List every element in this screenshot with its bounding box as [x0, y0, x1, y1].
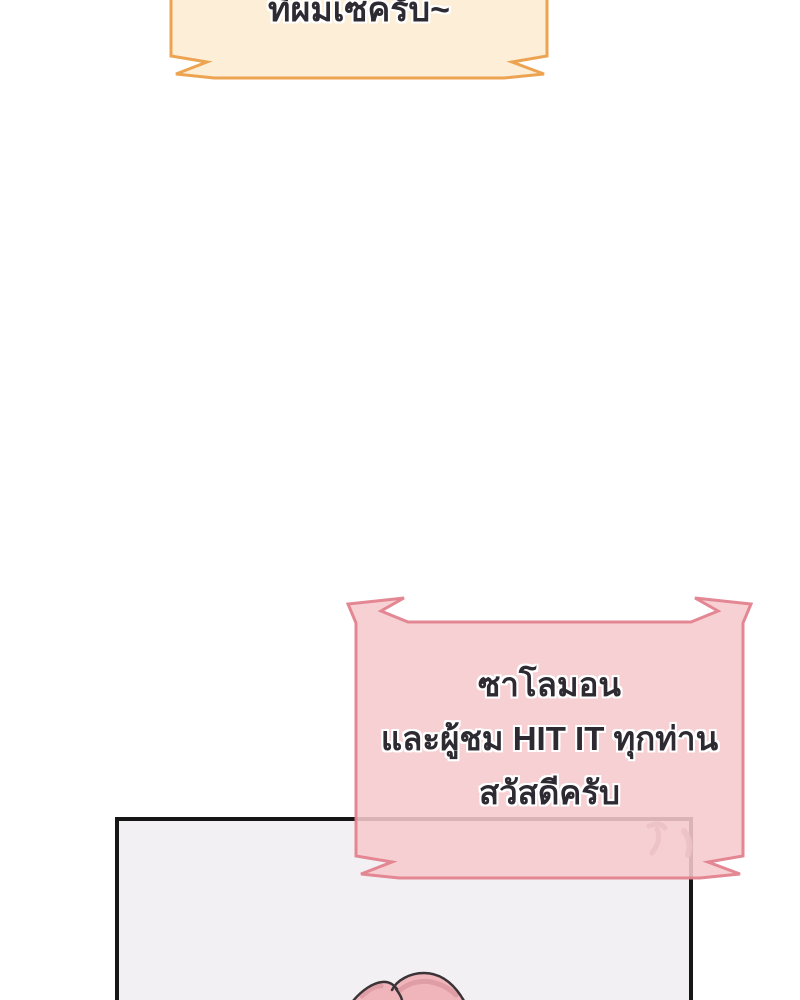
greeting-line-1: ซาโลมอน: [356, 658, 743, 712]
greeting-line-2: และผู้ชม HIT IT ทุกท่าน: [356, 712, 743, 766]
speech-bubble-top-text: ที่ผมเซครับ~: [171, 0, 547, 34]
comic-page: ที่ผมเซครับ~ ซาโลมอน และผู้ชม HIT IT ทุก…: [0, 0, 800, 1000]
greeting-line-3: สวัสดีครับ: [356, 766, 743, 820]
speech-bubble-greeting-text: ซาโลมอน และผู้ชม HIT IT ทุกท่าน สวัสดีคร…: [356, 622, 743, 878]
